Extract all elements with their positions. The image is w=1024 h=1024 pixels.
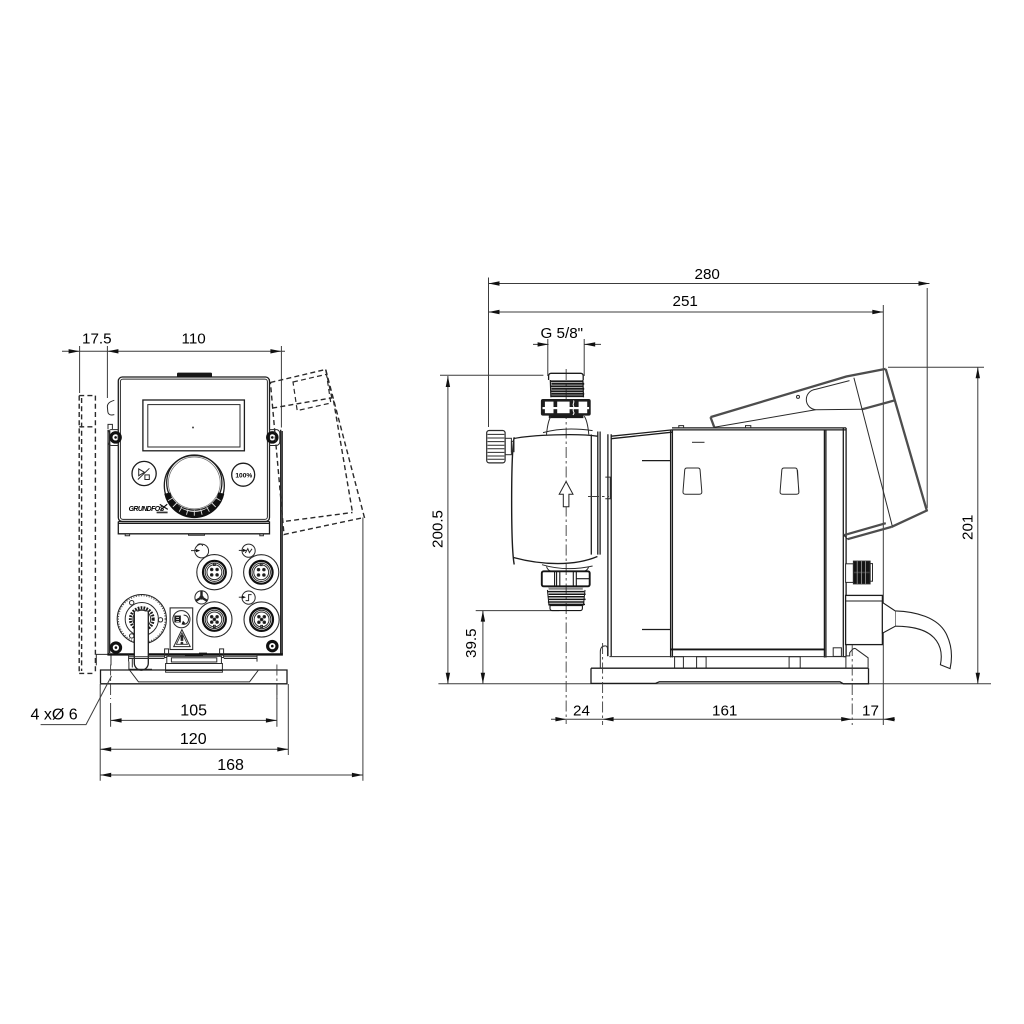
- svg-text:200.5: 200.5: [430, 510, 447, 548]
- svg-text:24: 24: [573, 702, 590, 719]
- svg-text:168: 168: [217, 757, 244, 774]
- svg-text:120: 120: [180, 731, 207, 748]
- svg-text:17: 17: [862, 702, 879, 719]
- svg-text:280: 280: [695, 266, 720, 283]
- svg-text:201: 201: [960, 515, 977, 540]
- svg-text:100%: 100%: [235, 473, 252, 480]
- svg-text:4 xØ 6: 4 xØ 6: [31, 706, 78, 723]
- svg-text:110: 110: [182, 331, 206, 348]
- svg-text:161: 161: [712, 702, 737, 719]
- svg-text:39.5: 39.5: [463, 628, 480, 658]
- svg-text:251: 251: [673, 293, 698, 310]
- svg-text:17.5: 17.5: [82, 331, 112, 348]
- svg-text:105: 105: [180, 702, 207, 719]
- svg-text:G 5/8": G 5/8": [541, 325, 584, 342]
